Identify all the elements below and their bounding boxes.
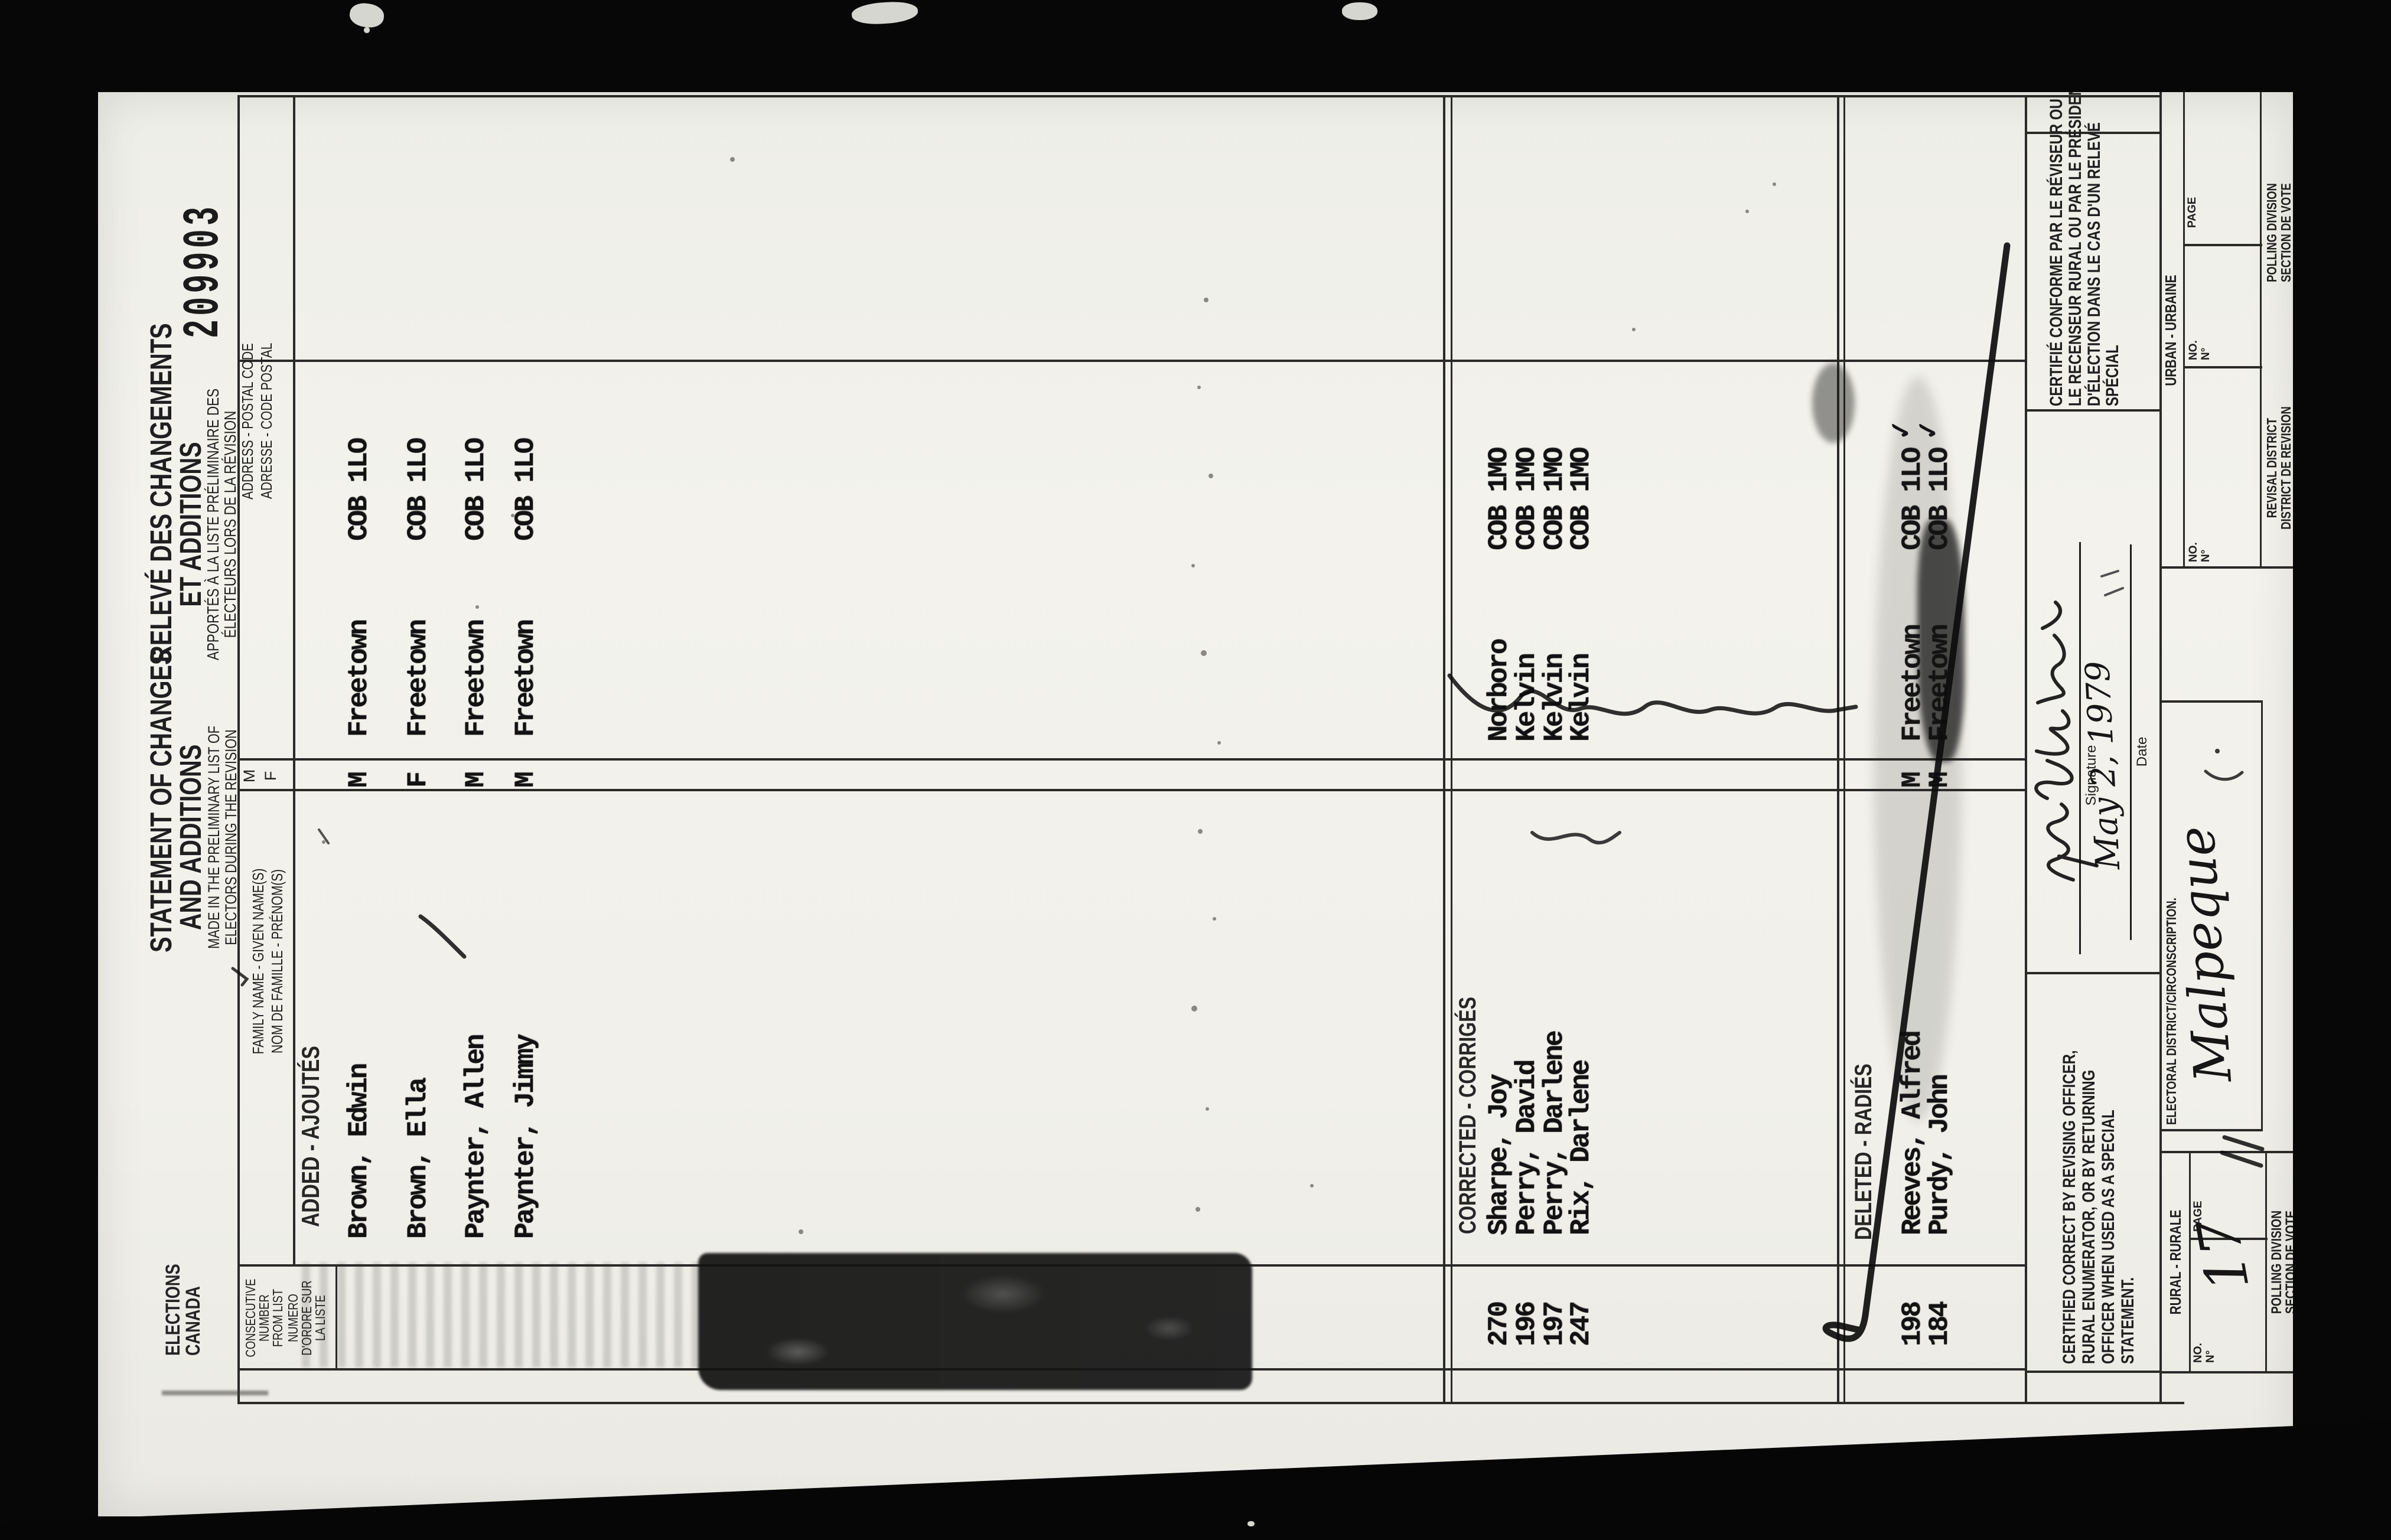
corrected-row-2-name: Perry, David (1513, 1061, 1541, 1235)
wavy-pen-stroke-short (1532, 833, 1620, 843)
title-en-line1: STATEMENT OF CHANGES (145, 722, 177, 952)
district-handwriting: Malpeque (2170, 824, 2240, 1084)
col-header-consecutive-fr-1: NUMERO (286, 1276, 300, 1360)
urban-title: URBAN - URBAINE (2163, 140, 2179, 521)
table-name-mf-border (237, 789, 2027, 791)
cert-en-box-left (2025, 1371, 2162, 1373)
district-box-bottom (2261, 700, 2263, 1131)
rural-title: RURAL - RURALE (2168, 1173, 2184, 1352)
cert-fr-line2: LE RECENSEUR RURAL OU PAR LE PRÉSIDENT (2066, 92, 2085, 406)
table-bottom-border (2025, 96, 2027, 1404)
copier-margin-blob-3 (1342, 2, 1377, 20)
deleted-row-2-community: Freetown (1926, 625, 1954, 742)
elections-canada-logo-line1: ELECTIONS (163, 1264, 184, 1356)
cert-fr-line1: CERTIFIÉ CONFORME PAR LE RÉVISEUR OU (2047, 99, 2066, 406)
deleted-row-2-postal: COB 1LO (1926, 449, 1954, 550)
copier-margin-blob-2 (851, 0, 918, 26)
corrected-divider-2 (1451, 96, 1452, 1404)
title-en-sub1: MADE IN THE PRELIMINARY LIST OF (206, 719, 222, 955)
corrected-row-3-community: Kelvin (1540, 654, 1569, 742)
title-fr-sub2: ÉLECTEURS LORS DE LA RÉVISION (221, 383, 239, 666)
scanner-smudge-light-band (302, 1262, 709, 1368)
corrected-row-1-number: 270 (1485, 1303, 1513, 1346)
dot-pen-mark (2215, 749, 2220, 753)
urban-strip-bottom (2183, 92, 2185, 569)
copier-margin-dot (364, 27, 370, 33)
urban-revisal-line1: REVISAL DISTRICT (2265, 387, 2279, 549)
added-row-3-community: Freetown (462, 621, 490, 737)
urban-polling-line1: POLLING DIVISION (2265, 124, 2279, 341)
pen-slash-added-section (421, 916, 464, 957)
urban-cells-bottom (2260, 92, 2262, 569)
corrected-divider-1 (1443, 96, 1445, 1404)
urban-polling-line2: SECTION DE VOTE (2279, 124, 2293, 341)
left-margin-streak (162, 1391, 268, 1395)
deleted-row-1-name: Reeves, Alfred (1898, 1032, 1927, 1235)
paren-pen-mark (2206, 771, 2242, 779)
urban-revisal-line2: DISTRICT DE REVISION (2279, 387, 2293, 549)
table-mf-address-border (237, 758, 2027, 761)
col-header-address-fr: ADRESSE - CODE POSTAL (259, 343, 275, 499)
col-header-sex-f: F (262, 761, 279, 791)
cert-fr-line3: D'ÉLECTION DANS LE CAS D'UN RELEVÉ (2085, 122, 2104, 406)
corrected-row-4-postal: COB 1MO (1567, 449, 1595, 550)
added-row-2-sex: F (404, 773, 432, 788)
deleted-row-2-name: Purdy, John (1926, 1075, 1954, 1235)
added-row-1-community: Freetown (345, 621, 373, 737)
cert-en-line3: OFFICER WHEN USED AS A SPECIAL (2099, 1110, 2118, 1364)
deleted-row-2-sex: M (1926, 773, 1954, 788)
col-header-consecutive-en-1: CONSECUTIVE (243, 1276, 258, 1360)
corrected-row-2-postal: COB 1MO (1513, 449, 1541, 550)
corrected-row-3-name: Perry, Darlene (1540, 1032, 1569, 1235)
deleted-divider-2 (1843, 96, 1845, 1404)
added-row-2-postal: COB 1LO (404, 439, 432, 541)
cert-en-box-right (2025, 972, 2162, 974)
added-row-2-name: Brown, Ella (404, 1079, 432, 1239)
urban-page-label: PAGE (2187, 197, 2198, 228)
date-label: Date (2135, 690, 2149, 814)
urban-group-left (2159, 566, 2293, 569)
district-box-left (2159, 1129, 2261, 1131)
table-col1-left-border (237, 1368, 2027, 1371)
deleted-divider-1 (1837, 96, 1839, 1404)
added-row-1-sex: M (345, 773, 373, 788)
corrected-row-3-number: 197 (1540, 1303, 1569, 1346)
urban-no1-deg-label: N° (2200, 550, 2212, 562)
col-header-sex-m: M (241, 761, 258, 791)
scanned-paper: ELECTIONS CANADA STATEMENT OF CHANGES AN… (98, 92, 2293, 1516)
form-serial-number: 209903 (177, 203, 230, 338)
corrected-row-4-number: 247 (1567, 1303, 1595, 1346)
urban-cell-divider-2 (2183, 244, 2262, 246)
table-address-right-border (237, 360, 2027, 362)
rural-no-deg-label: N° (2205, 1350, 2217, 1363)
added-row-3-name: Paynter, Allen (462, 1036, 490, 1239)
cert-en-line2: RURAL ENUMERATOR, OR BY RETURNING (2080, 1070, 2099, 1364)
urban-cell-divider-1 (2183, 366, 2262, 368)
rural-group-right (2159, 1151, 2293, 1153)
section-label-corrected: CORRECTED - CORRIGÉS (1455, 997, 1480, 1234)
urban-no2-deg-label: N° (2200, 348, 2212, 360)
deleted-row-1-sex: M (1898, 773, 1927, 788)
col-header-address-en: ADDRESS - POSTAL CODE (240, 343, 256, 500)
deleted-row-2-number: 184 (1926, 1303, 1954, 1346)
title-fr-line2: ET ADDITIONS (175, 386, 207, 663)
col-header-consecutive-fr-3: LA LISTE (313, 1276, 327, 1360)
col-header-name-en: FAMILY NAME - GIVEN NAME(S) (250, 782, 266, 1141)
deleted-row-1-postal: COB 1LO (1898, 449, 1927, 550)
title-fr-line1: RELEVÉ DES CHANGEMENTS (145, 386, 177, 663)
added-row-4-name: Paynter, Jimmy (512, 1036, 540, 1239)
cert-fr-line4: SPÉCIAL (2103, 345, 2122, 406)
corrected-row-2-number: 196 (1513, 1303, 1541, 1346)
pen-checkmark-name-header (233, 968, 247, 985)
signature-rule (2079, 542, 2081, 954)
table-top-border (237, 96, 240, 1404)
section-label-added: ADDED - AJOUTÉS (298, 1046, 324, 1227)
added-row-4-community: Freetown (512, 621, 540, 737)
copier-margin-blob-1 (348, 1, 385, 30)
date-handwriting: May 2, 1979 (2081, 660, 2126, 871)
corrected-row-1-name: Sharpe, Joy (1485, 1075, 1513, 1235)
form-natural-orientation: ELECTIONS CANADA STATEMENT OF CHANGES AN… (98, 92, 2293, 1516)
added-row-4-sex: M (512, 773, 540, 788)
copier-bottom-dot (1247, 1521, 1255, 1526)
cert-en-line4: STATEMENT. (2119, 1277, 2138, 1364)
section-label-deleted: DELETED - RADIÉS (1851, 1063, 1876, 1240)
corrected-row-4-community: Kelvin (1567, 654, 1595, 742)
added-row-3-sex: M (462, 773, 490, 788)
elections-canada-logo-line2: CANADA (183, 1286, 204, 1356)
col-header-consecutive-en-3: FROM LIST (271, 1276, 285, 1360)
rural-polling-line2: SECTION DE VOTE (2283, 1173, 2293, 1352)
col-header-consecutive-en-2: NUMBER (257, 1276, 271, 1360)
col1-header-bottom-border (335, 1265, 337, 1371)
ink-smudge-near-deleted-divider (1812, 363, 1855, 443)
added-row-4-postal: COB 1LO (512, 439, 540, 541)
rural-page-value-handwriting: 17 (2188, 1214, 2259, 1296)
table-outer-right-border (237, 95, 2159, 97)
rural-cells-bottom (2265, 1151, 2267, 1373)
rural-no-label: NO. (2193, 1343, 2204, 1363)
added-row-1-name: Brown, Edwin (345, 1065, 373, 1239)
col-header-consecutive-fr-2: D'ORDRE SUR (299, 1276, 314, 1360)
table-col1-right-border (237, 1264, 2027, 1267)
district-box-right (2159, 700, 2261, 703)
rural-polling-line1: POLLING DIVISION (2269, 1173, 2284, 1352)
urban-no1-label: NO. (2188, 542, 2200, 562)
added-row-3-postal: COB 1LO (462, 439, 490, 541)
date-rule (2130, 544, 2132, 940)
deleted-row-1-community: Freetown (1898, 625, 1927, 742)
table-outer-left-border (237, 1402, 2184, 1404)
added-row-1-postal: COB 1LO (345, 439, 373, 541)
cert-fr-box-left (2025, 409, 2162, 412)
col-header-name-fr: NOM DE FAMILLE - PRÉNOM(S) (269, 782, 285, 1141)
date-trailing-marks (2102, 571, 2123, 595)
pen-marks-overlay (98, 92, 2293, 1516)
header-row-bottom-border (293, 96, 295, 1267)
rural-group-left (2159, 1371, 2293, 1373)
added-row-2-community: Freetown (404, 621, 432, 737)
cert-en-line1: CERTIFIED CORRECT BY REVISING OFFICER, (2060, 1050, 2079, 1364)
urban-no2-label: NO. (2188, 340, 2200, 360)
pen-mark-added-label-row (319, 830, 328, 843)
deleted-row-1-number: 198 (1898, 1303, 1927, 1346)
corrected-row-1-postal: COB 1MO (1485, 449, 1513, 550)
scanned-document-page: { "scan": { "serial": "209903" }, "logo"… (0, 0, 2391, 1540)
corrected-row-4-name: Rix, Darlene (1567, 1061, 1595, 1235)
corrected-row-2-community: Kelvin (1513, 654, 1541, 742)
title-fr-sub1: APPORTÉS À LA LISTE PRÉLIMINAIRE DES (204, 383, 221, 666)
corrected-row-3-postal: COB 1MO (1540, 449, 1569, 550)
corrected-row-1-community: Norboro (1485, 640, 1513, 742)
deleted-row-2-checkmark: ✓ (1914, 417, 1944, 442)
title-en-line2: AND ADDITIONS (175, 722, 207, 952)
